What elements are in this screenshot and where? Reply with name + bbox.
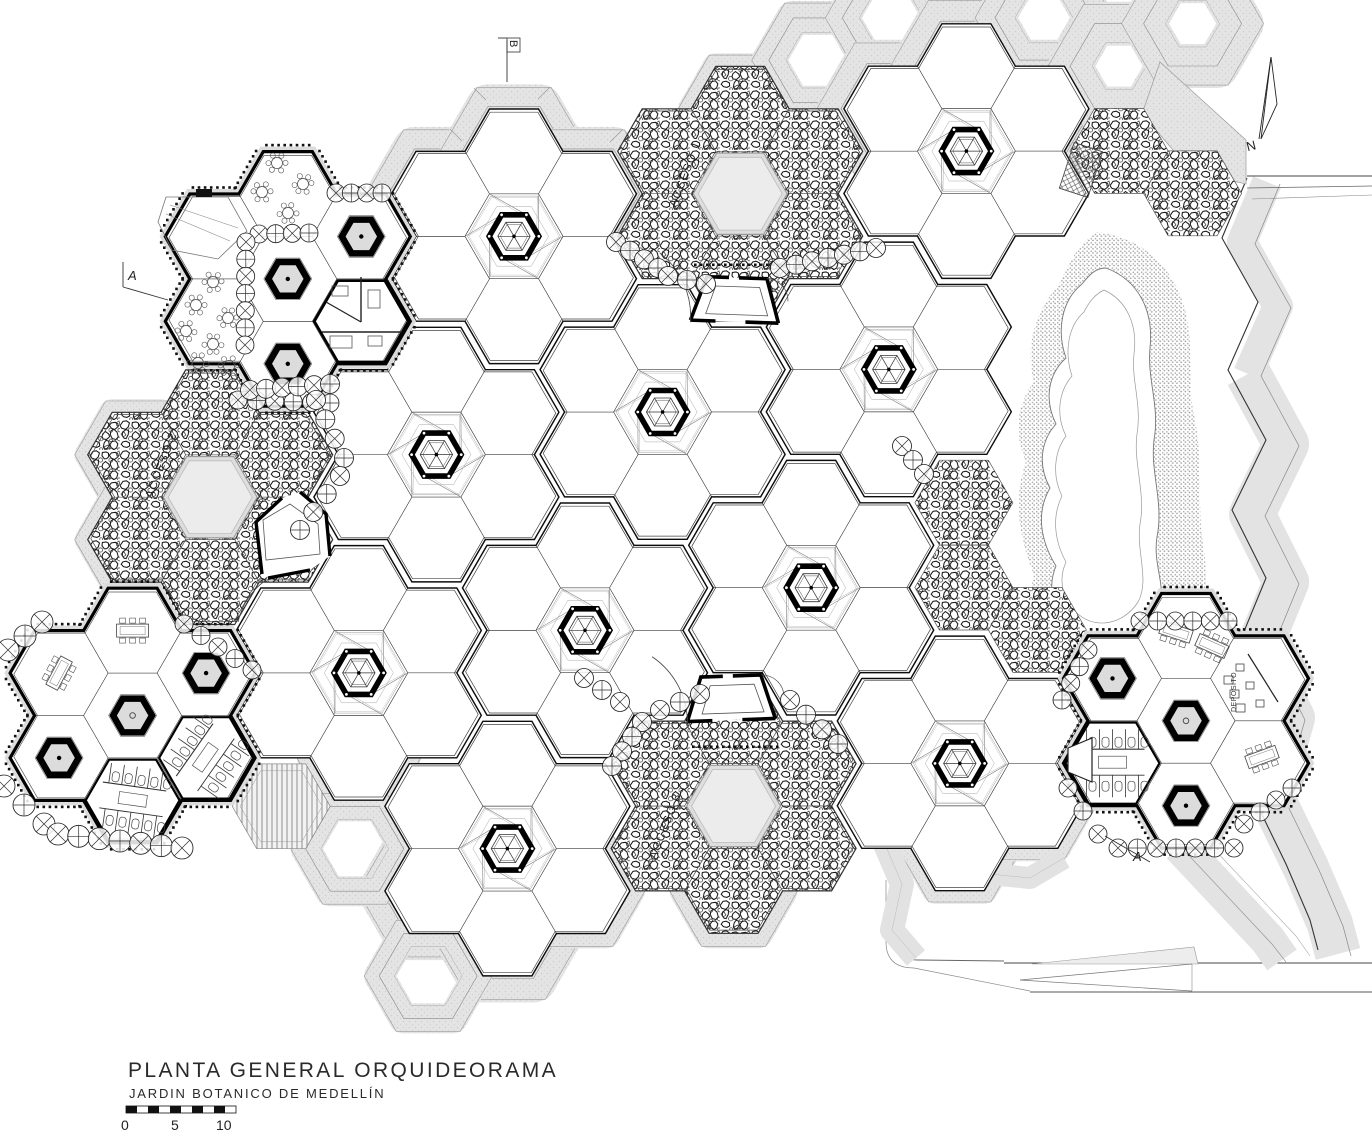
svg-text:5: 5 xyxy=(171,1117,179,1131)
svg-text:10: 10 xyxy=(216,1117,232,1131)
svg-text:JARDIN BOTANICO DE MEDELLÍN: JARDIN BOTANICO DE MEDELLÍN xyxy=(129,1086,385,1101)
svg-text:PLANTA GENERAL ORQUIDEORAMA: PLANTA GENERAL ORQUIDEORAMA xyxy=(128,1059,558,1082)
svg-text:DEPOSITO: DEPOSITO xyxy=(1231,672,1238,712)
svg-text:0: 0 xyxy=(121,1117,129,1131)
svg-text:A: A xyxy=(1132,849,1142,864)
svg-text:A: A xyxy=(127,268,137,283)
svg-text:B: B xyxy=(507,40,519,47)
